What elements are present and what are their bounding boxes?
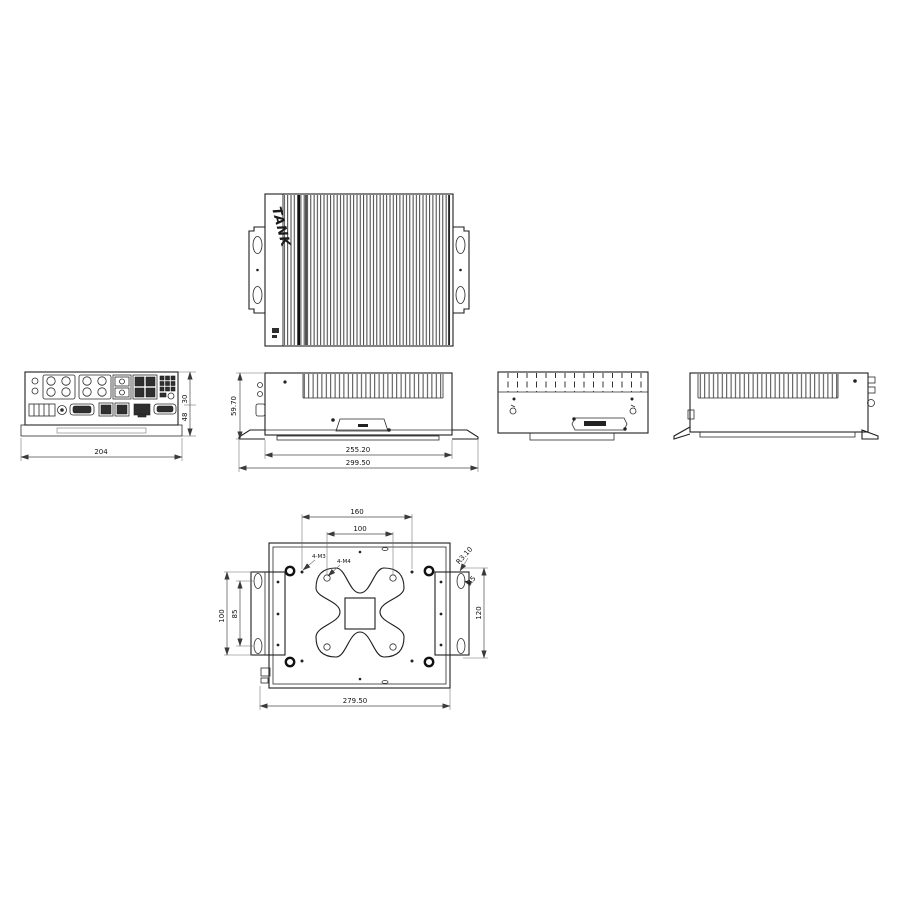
dim-side-body-width: 255.20 — [346, 446, 371, 454]
bottom-bar — [700, 432, 855, 437]
engineering-drawing-sheet: TANK — [0, 0, 900, 900]
dim-front-width: 204 — [94, 448, 108, 456]
rear-view — [498, 372, 648, 440]
screw-callout-1: 4-M3 — [312, 554, 326, 560]
mount-slot — [254, 639, 262, 654]
mount-slot — [253, 237, 262, 254]
led-indicator — [32, 378, 38, 384]
vesa-hole — [390, 575, 396, 581]
edge-connector — [868, 387, 875, 393]
edge-connector — [868, 377, 875, 383]
rj45-port — [134, 404, 150, 415]
dim-side-overall-width: 299.50 — [346, 459, 371, 467]
vesa-hole — [390, 644, 396, 650]
screw-hole — [853, 379, 857, 383]
cert-mark — [272, 328, 279, 333]
bottom-inner-outline — [273, 547, 446, 684]
dim-corner-radius: R3.10 — [455, 545, 475, 566]
right-side-view — [674, 373, 878, 439]
antenna-hole — [510, 408, 516, 414]
side-view: 59.70 255.20 299.50 — [230, 373, 478, 472]
dim-slot-radius: R5 — [465, 575, 477, 587]
drawing-svg: TANK — [0, 0, 900, 900]
bottom-left-bracket — [251, 572, 285, 655]
cert-mark — [272, 335, 277, 338]
dim-front-upper: 30 — [181, 395, 189, 404]
right-side-fins — [698, 374, 838, 398]
mount-slot — [457, 574, 465, 589]
dip-switch-grid — [160, 376, 175, 391]
screw-hole — [283, 380, 286, 383]
bottom-bar — [277, 436, 439, 440]
foot-hole — [286, 658, 294, 666]
dim-bracket-height: 100 — [218, 609, 226, 622]
vesa-hole — [324, 644, 330, 650]
bottom-outline — [269, 543, 450, 688]
side-connector-bump — [258, 392, 263, 397]
left-foot — [674, 427, 690, 439]
side-fins — [303, 374, 443, 398]
right-foot — [862, 430, 878, 439]
dim-slot-pitch: 85 — [231, 610, 239, 619]
bottom-edge-connector — [261, 678, 268, 683]
mount-slot — [456, 237, 465, 254]
side-connector-bump — [258, 383, 263, 388]
dim-vesa-pitch: 100 — [353, 525, 366, 533]
front-base-recess — [57, 428, 146, 433]
right-foot — [452, 430, 478, 439]
vesa-hole — [324, 575, 330, 581]
bottom-view: 4-M3 4-M4 160 100 100 85 — [218, 508, 488, 710]
vesa-mount-plate — [316, 568, 404, 657]
screw-hole — [459, 269, 462, 272]
heatsink-fins — [284, 195, 452, 345]
mount-slot — [457, 639, 465, 654]
front-view: 30 48 204 — [21, 372, 196, 461]
front-base — [21, 425, 182, 436]
plate-slot — [358, 424, 368, 427]
dim-bottom-width: 279.50 — [343, 697, 368, 705]
rear-base — [530, 433, 614, 440]
foot-hole — [425, 658, 433, 666]
terminal-block — [29, 404, 55, 416]
edge-clip — [688, 410, 694, 419]
reset-switch — [160, 393, 166, 397]
mount-slot — [253, 287, 262, 304]
antenna-hole — [630, 408, 636, 414]
plate-label — [584, 421, 606, 426]
mount-slot — [456, 287, 465, 304]
dim-front-lower: 48 — [181, 413, 189, 422]
center-cutout — [345, 598, 375, 629]
dim-right-pitch: 120 — [475, 606, 483, 619]
dim-mount-span: 160 — [350, 508, 363, 516]
mount-slot — [254, 574, 262, 589]
screw-callout-2: 4-M4 — [337, 559, 351, 565]
side-clip — [256, 404, 265, 416]
top-view: TANK — [249, 194, 469, 346]
antenna-connector — [168, 393, 174, 399]
screw-hole — [256, 269, 259, 272]
power-button — [32, 388, 38, 394]
foot-hole — [425, 567, 433, 575]
left-foot — [239, 430, 265, 439]
rear-fins — [500, 373, 646, 392]
dim-side-height: 59.70 — [230, 396, 238, 416]
foot-hole — [286, 567, 294, 575]
